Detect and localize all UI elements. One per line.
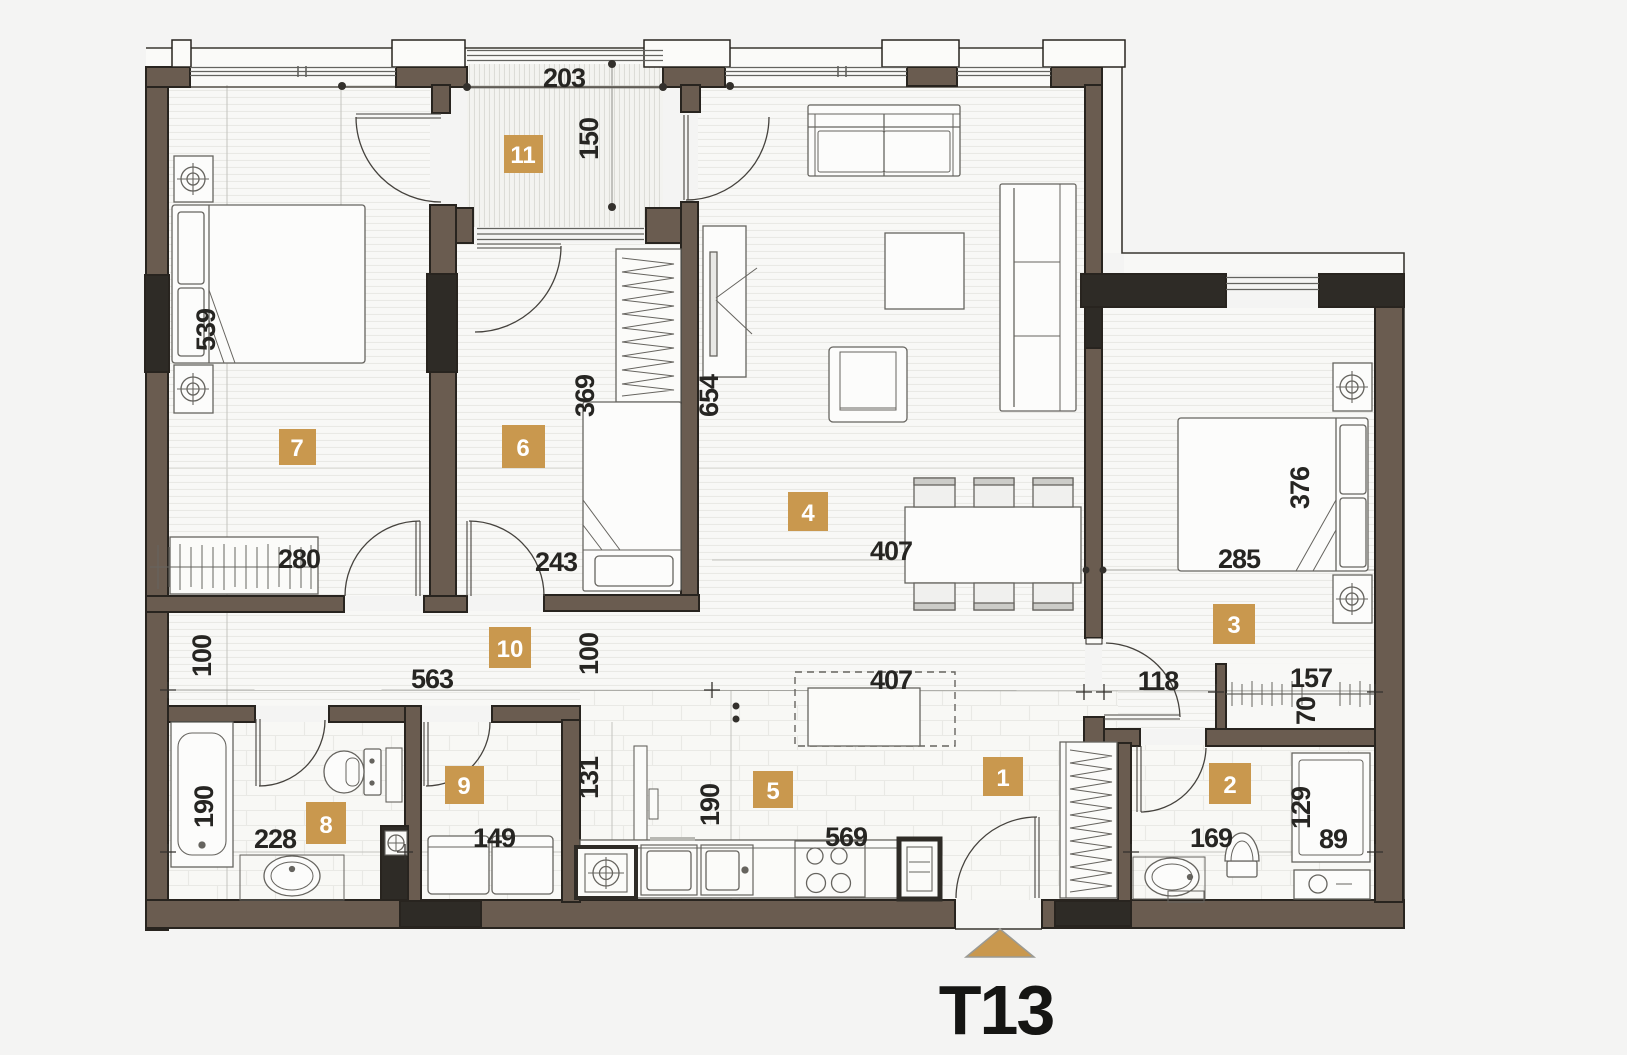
svg-text:280: 280 <box>278 544 320 574</box>
svg-text:131: 131 <box>574 756 604 799</box>
svg-text:6: 6 <box>516 435 529 462</box>
svg-text:89: 89 <box>1319 824 1348 854</box>
svg-text:157: 157 <box>1290 663 1332 693</box>
svg-text:190: 190 <box>695 784 725 826</box>
svg-text:3: 3 <box>1227 612 1240 639</box>
svg-text:9: 9 <box>457 773 470 800</box>
svg-text:70: 70 <box>1291 697 1321 725</box>
svg-text:190: 190 <box>189 786 219 828</box>
svg-text:407: 407 <box>870 665 912 695</box>
svg-text:228: 228 <box>254 824 297 854</box>
svg-text:569: 569 <box>825 822 868 852</box>
svg-text:10: 10 <box>497 636 524 663</box>
svg-text:100: 100 <box>187 635 217 677</box>
svg-text:243: 243 <box>535 547 578 577</box>
svg-text:169: 169 <box>1190 823 1233 853</box>
svg-text:118: 118 <box>1138 666 1180 696</box>
svg-text:407: 407 <box>870 536 912 566</box>
svg-text:11: 11 <box>510 142 535 169</box>
svg-text:100: 100 <box>574 633 604 675</box>
svg-text:149: 149 <box>473 823 516 853</box>
svg-text:539: 539 <box>191 308 221 351</box>
svg-text:150: 150 <box>574 118 604 160</box>
svg-text:4: 4 <box>801 500 815 527</box>
svg-text:T13: T13 <box>939 971 1054 1049</box>
svg-text:129: 129 <box>1286 786 1316 829</box>
svg-text:203: 203 <box>543 63 586 93</box>
svg-text:1: 1 <box>996 765 1009 792</box>
svg-text:654: 654 <box>694 374 724 417</box>
svg-text:563: 563 <box>411 664 454 694</box>
svg-text:8: 8 <box>319 812 332 839</box>
svg-text:2: 2 <box>1223 772 1236 799</box>
svg-text:369: 369 <box>570 374 600 417</box>
svg-text:7: 7 <box>290 435 303 462</box>
svg-text:5: 5 <box>766 778 779 805</box>
svg-text:285: 285 <box>1218 544 1261 574</box>
svg-text:376: 376 <box>1285 466 1315 509</box>
